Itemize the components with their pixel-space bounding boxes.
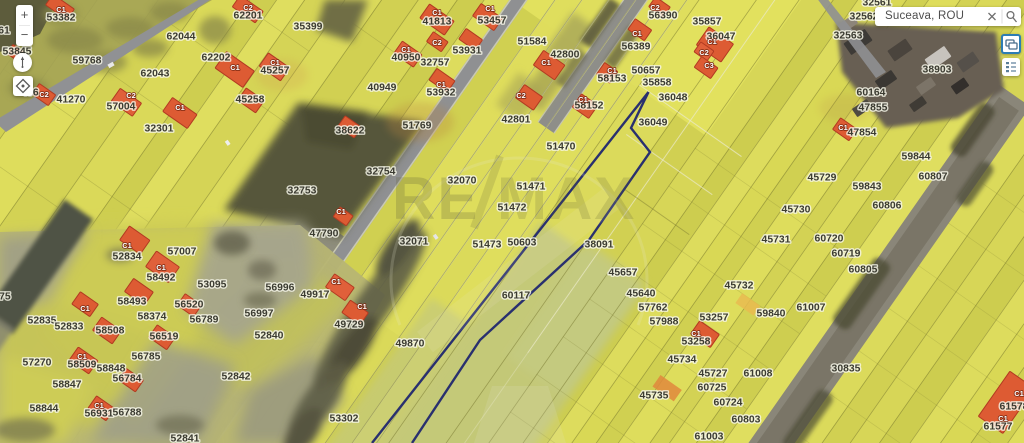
svg-text:47790: 47790 xyxy=(310,229,339,240)
svg-text:C2: C2 xyxy=(39,90,49,99)
svg-text:30835: 30835 xyxy=(832,364,861,375)
svg-text:61578: 61578 xyxy=(1000,402,1024,413)
svg-text:57004: 57004 xyxy=(107,102,136,113)
svg-text:C1: C1 xyxy=(436,80,446,89)
svg-text:62043: 62043 xyxy=(141,69,170,80)
svg-text:38903: 38903 xyxy=(923,65,952,76)
svg-text:45729: 45729 xyxy=(808,173,837,184)
svg-text:52834: 52834 xyxy=(113,252,142,263)
svg-text:60164: 60164 xyxy=(857,88,886,99)
svg-text:49917: 49917 xyxy=(301,290,330,301)
svg-text:57270: 57270 xyxy=(23,358,52,369)
svg-text:C2: C2 xyxy=(126,91,136,100)
svg-text:32753: 32753 xyxy=(288,186,317,197)
svg-text:49870: 49870 xyxy=(396,339,425,350)
svg-text:36049: 36049 xyxy=(639,118,668,129)
svg-text:58492: 58492 xyxy=(147,273,176,284)
svg-text:C1: C1 xyxy=(94,401,104,410)
svg-text:58374: 58374 xyxy=(138,312,167,323)
svg-text:62044: 62044 xyxy=(167,32,196,43)
svg-text:C1: C1 xyxy=(77,352,87,361)
svg-text:35399: 35399 xyxy=(294,22,323,33)
svg-text:45657: 45657 xyxy=(609,268,638,279)
svg-text:C2: C2 xyxy=(516,91,526,100)
svg-text:56785: 56785 xyxy=(132,352,161,363)
svg-text:47855: 47855 xyxy=(859,103,888,114)
svg-text:C1: C1 xyxy=(998,414,1008,423)
svg-text:45730: 45730 xyxy=(782,205,811,216)
svg-text:C1: C1 xyxy=(432,8,442,17)
svg-text:C1: C1 xyxy=(578,95,588,104)
svg-text:58153: 58153 xyxy=(598,74,627,85)
svg-text:60725: 60725 xyxy=(698,383,727,394)
svg-text:58844: 58844 xyxy=(30,404,59,415)
svg-text:52835: 52835 xyxy=(28,316,57,327)
svg-text:C1: C1 xyxy=(56,5,66,14)
svg-text:C2: C2 xyxy=(432,38,442,47)
svg-text:C1: C1 xyxy=(156,263,166,272)
svg-text:58509: 58509 xyxy=(68,360,97,371)
svg-text:45731: 45731 xyxy=(762,235,791,246)
svg-text:52833: 52833 xyxy=(55,322,84,333)
svg-text:60720: 60720 xyxy=(815,234,844,245)
svg-text:C1: C1 xyxy=(838,123,848,132)
svg-text:C1: C1 xyxy=(331,277,341,286)
svg-text:56784: 56784 xyxy=(113,374,142,385)
svg-text:C1: C1 xyxy=(541,58,551,67)
svg-text:41270: 41270 xyxy=(57,95,86,106)
svg-text:62201: 62201 xyxy=(234,11,263,22)
svg-text:56789: 56789 xyxy=(190,315,219,326)
svg-text:53382: 53382 xyxy=(47,13,76,24)
svg-text:50657: 50657 xyxy=(632,66,661,77)
svg-text:58508: 58508 xyxy=(96,326,125,337)
svg-text:57007: 57007 xyxy=(168,247,197,258)
svg-text:61003: 61003 xyxy=(695,432,724,443)
svg-text:51470: 51470 xyxy=(547,142,576,153)
svg-text:C1: C1 xyxy=(336,207,346,216)
svg-text:56931: 56931 xyxy=(85,409,114,420)
svg-text:56519: 56519 xyxy=(150,332,179,343)
svg-text:42800: 42800 xyxy=(551,50,580,61)
svg-text:35858: 35858 xyxy=(643,78,672,89)
svg-text:49729: 49729 xyxy=(335,320,364,331)
svg-text:56390: 56390 xyxy=(649,11,678,22)
svg-text:51472: 51472 xyxy=(498,203,527,214)
svg-text:C1: C1 xyxy=(485,4,495,13)
svg-text:56520: 56520 xyxy=(175,300,204,311)
svg-text:53302: 53302 xyxy=(330,414,359,425)
svg-text:56997: 56997 xyxy=(245,309,274,320)
svg-text:C2: C2 xyxy=(650,3,660,12)
svg-text:56389: 56389 xyxy=(622,42,651,53)
svg-text:62202: 62202 xyxy=(202,53,231,64)
svg-text:56996: 56996 xyxy=(266,283,295,294)
svg-text:58493: 58493 xyxy=(118,297,147,308)
svg-text:53931: 53931 xyxy=(453,46,482,57)
svg-text:52841: 52841 xyxy=(171,434,200,443)
svg-text:32070: 32070 xyxy=(448,176,477,187)
svg-text:53095: 53095 xyxy=(198,280,227,291)
svg-text:32563: 32563 xyxy=(834,31,863,42)
svg-text:53257: 53257 xyxy=(700,313,729,324)
svg-text:60719: 60719 xyxy=(832,249,861,260)
svg-text:50603: 50603 xyxy=(508,238,537,249)
svg-text:C1: C1 xyxy=(80,304,90,313)
svg-text:59843: 59843 xyxy=(853,182,882,193)
svg-text:53457: 53457 xyxy=(478,16,507,27)
svg-text:32071: 32071 xyxy=(400,237,429,248)
svg-text:61577: 61577 xyxy=(984,422,1013,433)
svg-text:C1: C1 xyxy=(632,29,642,38)
svg-text:60805: 60805 xyxy=(849,265,878,276)
svg-text:42801: 42801 xyxy=(502,115,531,126)
svg-text:C2: C2 xyxy=(243,3,253,12)
svg-text:32754: 32754 xyxy=(367,167,396,178)
svg-text:C1: C1 xyxy=(1014,389,1024,398)
svg-text:47854: 47854 xyxy=(848,128,877,139)
svg-text:51473: 51473 xyxy=(473,240,502,251)
svg-text:45732: 45732 xyxy=(725,281,754,292)
svg-text:45258: 45258 xyxy=(236,95,265,106)
svg-text:52840: 52840 xyxy=(255,331,284,342)
svg-text:60806: 60806 xyxy=(873,201,902,212)
svg-text:57988: 57988 xyxy=(650,317,679,328)
svg-text:45734: 45734 xyxy=(668,355,697,366)
svg-text:C1: C1 xyxy=(270,58,280,67)
svg-text:MAX: MAX xyxy=(497,165,636,232)
svg-text:59768: 59768 xyxy=(73,56,102,67)
svg-text:C1: C1 xyxy=(122,241,132,250)
svg-text:52842: 52842 xyxy=(222,372,251,383)
svg-text:61008: 61008 xyxy=(744,369,773,380)
svg-text:C1: C1 xyxy=(230,63,240,72)
svg-text:51584: 51584 xyxy=(518,37,547,48)
svg-text:53258: 53258 xyxy=(682,337,711,348)
svg-text:57762: 57762 xyxy=(639,303,668,314)
svg-text:61: 61 xyxy=(0,26,10,37)
svg-text:C1: C1 xyxy=(401,45,411,54)
svg-text:56788: 56788 xyxy=(113,408,142,419)
svg-text:45735: 45735 xyxy=(640,391,669,402)
svg-text:40949: 40949 xyxy=(368,83,397,94)
svg-text:59844: 59844 xyxy=(902,152,931,163)
svg-text:C2: C2 xyxy=(699,48,709,57)
svg-text:60724: 60724 xyxy=(714,398,743,409)
svg-text:38622: 38622 xyxy=(336,126,365,137)
svg-text:58847: 58847 xyxy=(53,380,82,391)
svg-text:35857: 35857 xyxy=(693,17,722,28)
svg-text:51471: 51471 xyxy=(517,182,546,193)
svg-text:41813: 41813 xyxy=(423,17,452,28)
svg-text:C1: C1 xyxy=(691,329,701,338)
svg-text:45257: 45257 xyxy=(261,66,290,77)
svg-text:40950: 40950 xyxy=(392,53,421,64)
svg-text:C1: C1 xyxy=(607,66,617,75)
svg-text:61007: 61007 xyxy=(797,303,826,314)
svg-text:60807: 60807 xyxy=(919,172,948,183)
svg-text:32301: 32301 xyxy=(145,124,174,135)
svg-text:C1: C1 xyxy=(707,37,717,46)
svg-text:C1: C1 xyxy=(175,103,185,112)
svg-text:51769: 51769 xyxy=(403,121,432,132)
svg-text:59840: 59840 xyxy=(757,309,786,320)
svg-text:45640: 45640 xyxy=(627,289,656,300)
svg-text:C1: C1 xyxy=(357,302,367,311)
svg-text:32757: 32757 xyxy=(421,58,450,69)
svg-text:53932: 53932 xyxy=(427,88,456,99)
svg-text:45727: 45727 xyxy=(699,369,728,380)
svg-text:38091: 38091 xyxy=(585,240,614,251)
svg-text:575: 575 xyxy=(0,292,11,303)
svg-text:60117: 60117 xyxy=(502,291,531,302)
svg-text:60803: 60803 xyxy=(732,415,761,426)
svg-text:36048: 36048 xyxy=(659,93,688,104)
svg-text:C3: C3 xyxy=(704,61,714,70)
